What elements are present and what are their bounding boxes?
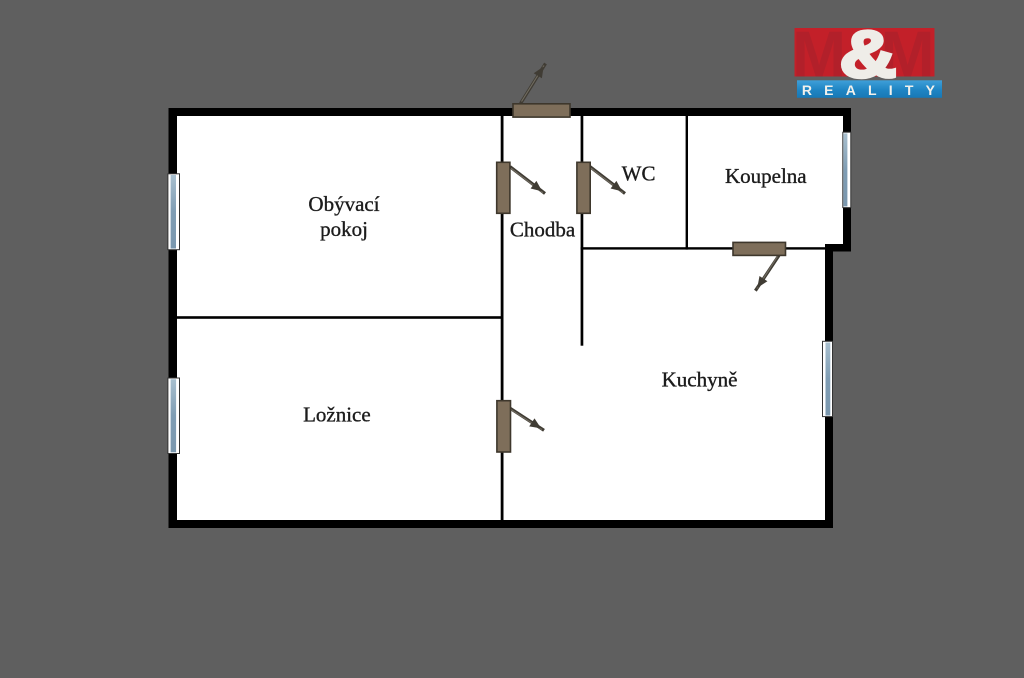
svg-text:Chodba: Chodba (510, 218, 576, 242)
svg-text:&: & (840, 17, 897, 91)
svg-text:pokoj: pokoj (320, 217, 368, 241)
svg-text:M: M (792, 18, 846, 91)
svg-text:Obývací: Obývací (308, 192, 379, 216)
svg-text:Kuchyně: Kuchyně (662, 368, 738, 392)
svg-text:Ložnice: Ložnice (303, 403, 371, 427)
svg-text:WC: WC (622, 162, 656, 186)
svg-text:REALITY: REALITY (802, 82, 947, 98)
svg-text:Koupelna: Koupelna (725, 164, 807, 188)
